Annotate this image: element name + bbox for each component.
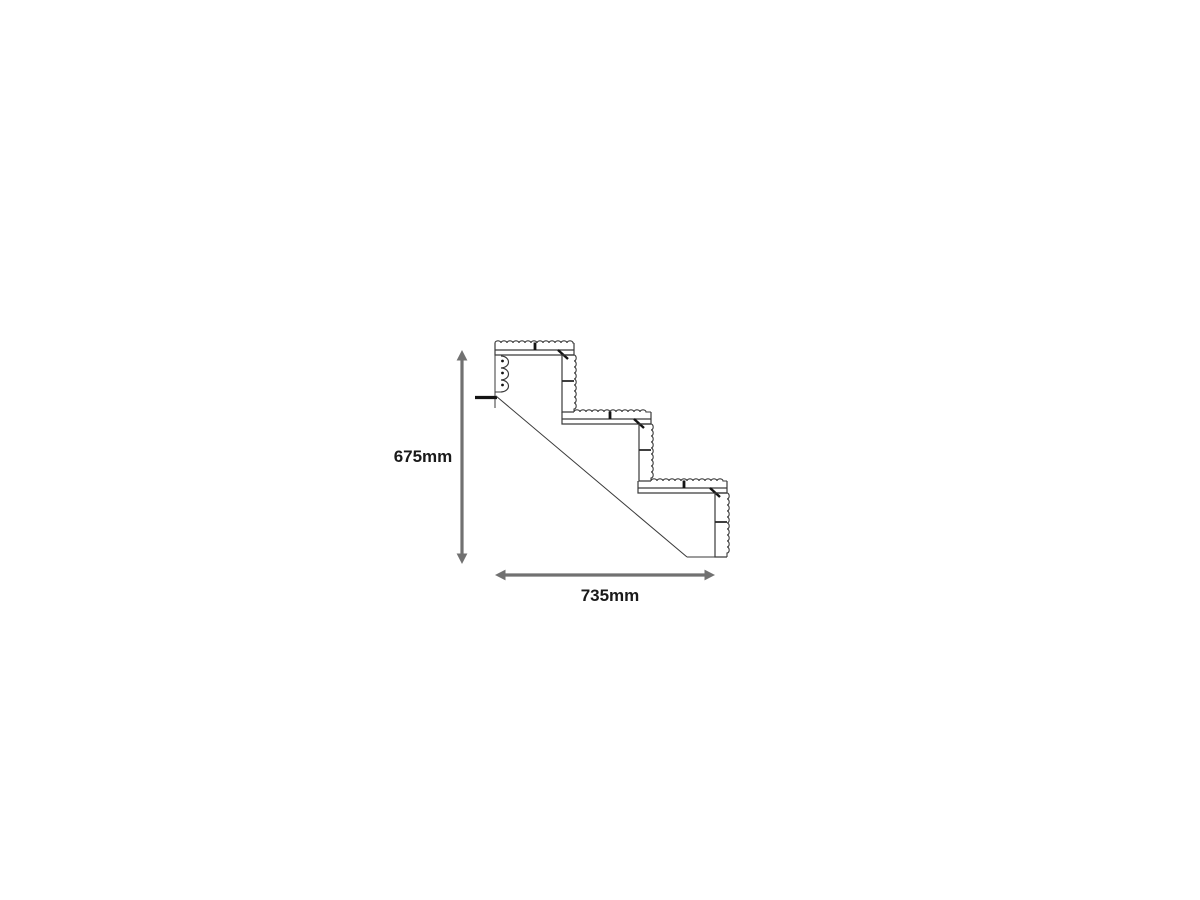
riser-3-ribbed-edge [727, 493, 729, 557]
height-dimension-label: 675mm [394, 447, 453, 466]
arrow-down-icon [457, 554, 468, 565]
fixing-dot [501, 384, 504, 387]
arrow-right-icon [705, 570, 716, 581]
tread-2 [562, 410, 651, 428]
width-dimension-label: 735mm [581, 586, 640, 605]
fixing-dot [501, 372, 504, 375]
height-dimension-arrow [457, 350, 468, 564]
riser-2-ribbed-edge [651, 424, 653, 481]
riser-1-outline [562, 355, 574, 412]
fixing-dot [501, 360, 504, 363]
arrow-up-icon [457, 350, 468, 361]
riser-1 [562, 355, 576, 412]
tread-3 [638, 479, 727, 497]
riser-1-ribbed-edge [574, 355, 576, 412]
staircase [475, 341, 729, 557]
width-dimension-arrow [495, 570, 715, 581]
drawing-canvas: 675mm 735mm [0, 0, 1200, 900]
stringer-line [496, 396, 687, 557]
riser-2-outline [639, 424, 651, 481]
riser-3 [715, 493, 729, 557]
tread-2-groove-top [574, 410, 651, 412]
riser-2 [639, 424, 653, 481]
stair-section-diagram: 675mm 735mm [0, 0, 1200, 900]
riser-3-outline [715, 493, 727, 557]
dimensions: 675mm 735mm [394, 350, 715, 605]
back-board [495, 355, 509, 408]
arrow-left-icon [495, 570, 506, 581]
tread-3-groove-top [651, 479, 727, 481]
